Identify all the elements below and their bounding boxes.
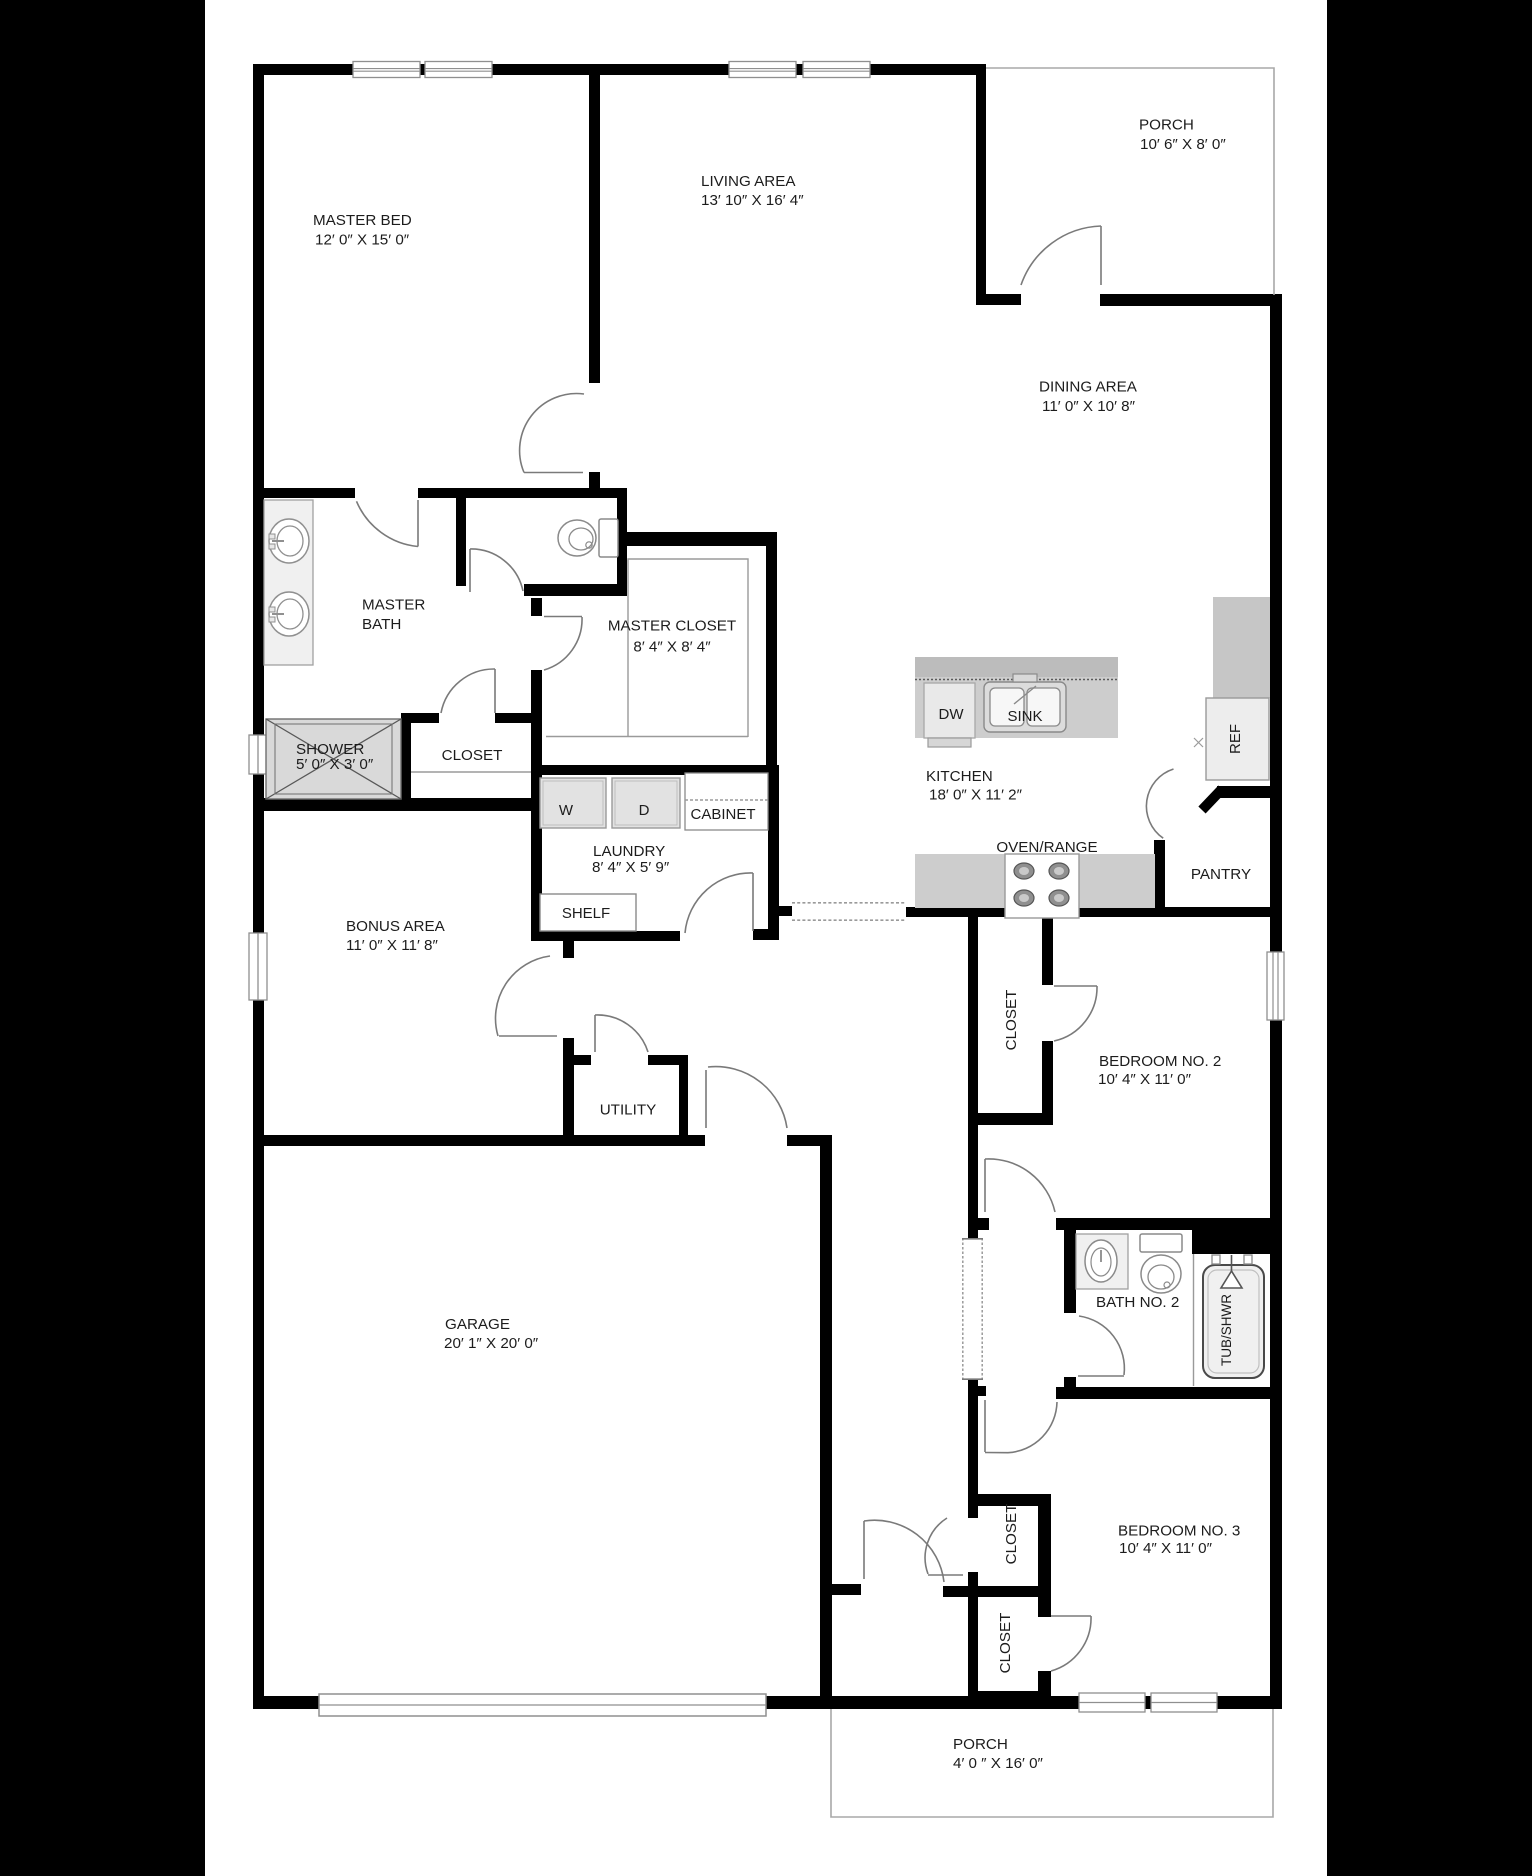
- svg-text:13′ 10″ X 16′ 4″: 13′ 10″ X 16′ 4″: [701, 192, 804, 209]
- svg-text:UTILITY: UTILITY: [600, 1102, 657, 1119]
- svg-text:PANTRY: PANTRY: [1191, 866, 1251, 883]
- svg-text:5′ 0″ X 3′ 0″: 5′ 0″ X 3′ 0″: [296, 756, 374, 773]
- svg-text:OVEN/RANGE: OVEN/RANGE: [996, 839, 1097, 856]
- svg-text:DINING AREA: DINING AREA: [1039, 379, 1138, 396]
- svg-text:BATH: BATH: [362, 616, 401, 633]
- svg-text:PORCH: PORCH: [953, 1736, 1008, 1753]
- svg-text:CLOSET: CLOSET: [1003, 990, 1020, 1051]
- svg-text:KITCHEN: KITCHEN: [926, 768, 993, 785]
- svg-text:REF: REF: [1227, 724, 1244, 754]
- svg-text:CLOSET: CLOSET: [997, 1613, 1014, 1674]
- svg-text:10′ 4″ X 11′ 0″: 10′ 4″ X 11′ 0″: [1119, 1540, 1213, 1557]
- svg-text:W: W: [559, 802, 574, 819]
- svg-text:SHELF: SHELF: [562, 905, 610, 922]
- svg-text:12′ 0″ X 15′ 0″: 12′ 0″ X 15′ 0″: [315, 232, 410, 249]
- svg-text:D: D: [639, 802, 650, 819]
- svg-text:11′ 0″ X 11′ 8″: 11′ 0″ X 11′ 8″: [346, 937, 439, 954]
- svg-text:20′ 1″ X 20′ 0″: 20′ 1″ X 20′ 0″: [444, 1335, 539, 1352]
- svg-text:CLOSET: CLOSET: [1003, 1504, 1020, 1565]
- svg-text:DW: DW: [939, 706, 965, 723]
- svg-text:CABINET: CABINET: [690, 806, 755, 823]
- svg-text:10′ 6″ X 8′ 0″: 10′ 6″ X 8′ 0″: [1140, 136, 1226, 153]
- svg-text:4′ 0 ″ X 16′ 0″: 4′ 0 ″ X 16′ 0″: [953, 1755, 1044, 1772]
- svg-text:10′ 4″ X 11′ 0″: 10′ 4″ X 11′ 0″: [1098, 1071, 1192, 1088]
- svg-text:LAUNDRY: LAUNDRY: [593, 843, 665, 860]
- svg-text:LIVING AREA: LIVING AREA: [701, 173, 796, 190]
- svg-text:CLOSET: CLOSET: [442, 747, 503, 764]
- svg-text:8′ 4″ X 8′ 4″: 8′ 4″ X 8′ 4″: [633, 639, 711, 656]
- svg-text:PORCH: PORCH: [1139, 117, 1194, 134]
- svg-text:TUB/SHWR: TUB/SHWR: [1219, 1294, 1234, 1366]
- svg-text:GARAGE: GARAGE: [445, 1316, 510, 1333]
- svg-text:BONUS AREA: BONUS AREA: [346, 918, 446, 935]
- svg-text:BEDROOM NO. 2: BEDROOM NO. 2: [1099, 1053, 1221, 1070]
- svg-text:MASTER BED: MASTER BED: [313, 212, 412, 229]
- svg-text:8′ 4″ X 5′ 9″: 8′ 4″ X 5′ 9″: [592, 859, 670, 876]
- svg-text:SINK: SINK: [1007, 708, 1042, 725]
- svg-text:BEDROOM NO. 3: BEDROOM NO. 3: [1118, 1523, 1240, 1540]
- svg-text:18′ 0″ X 11′ 2″: 18′ 0″ X 11′ 2″: [929, 787, 1023, 804]
- svg-text:BATH NO. 2: BATH NO. 2: [1096, 1294, 1179, 1311]
- svg-text:11′ 0″ X 10′ 8″: 11′ 0″ X 10′ 8″: [1042, 398, 1136, 415]
- svg-text:MASTER: MASTER: [362, 597, 425, 614]
- svg-text:MASTER CLOSET: MASTER CLOSET: [608, 618, 736, 635]
